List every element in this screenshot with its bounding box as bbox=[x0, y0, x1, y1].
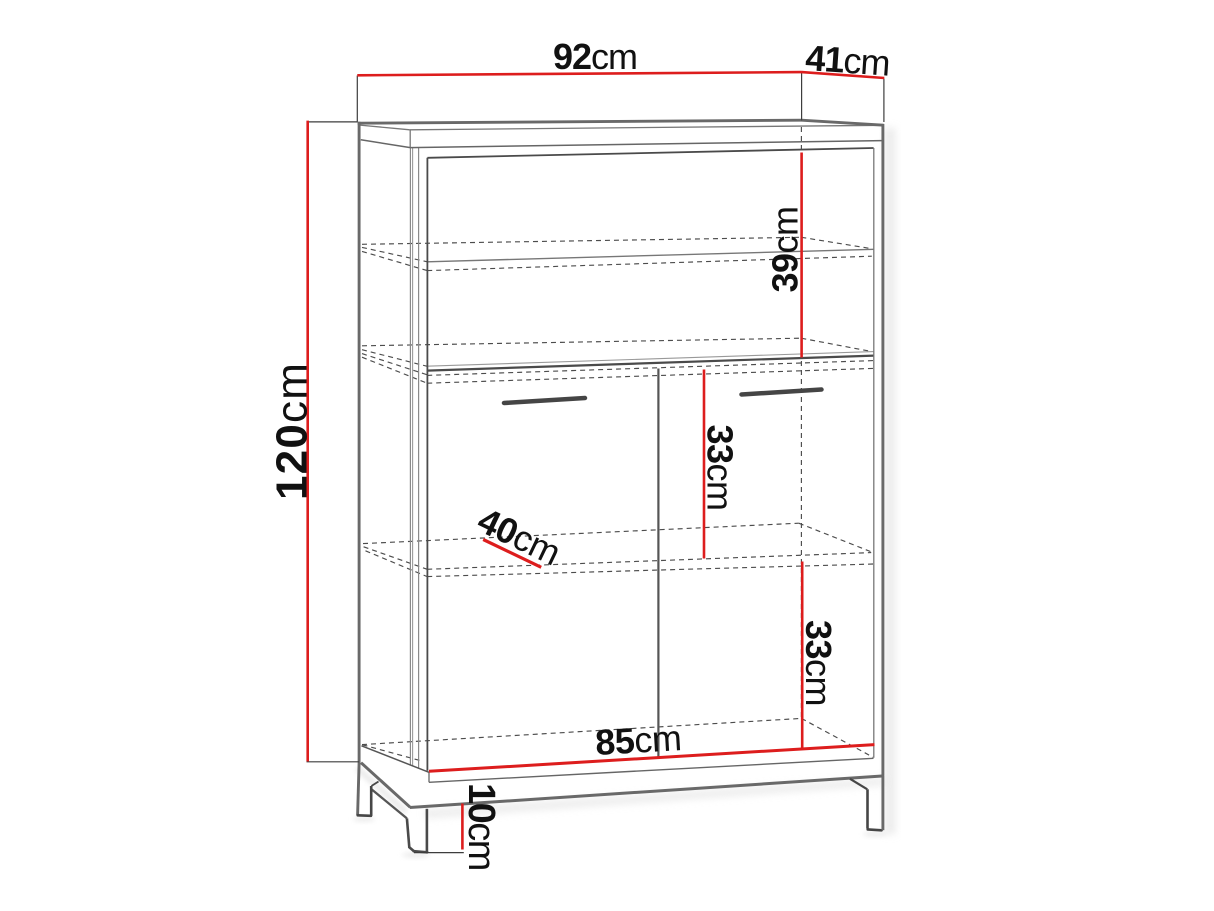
svg-text:40cm: 40cm bbox=[472, 499, 567, 573]
svg-text:41cm: 41cm bbox=[804, 37, 891, 84]
svg-text:10cm: 10cm bbox=[460, 783, 502, 870]
svg-text:33cm: 33cm bbox=[700, 425, 741, 511]
svg-text:85cm: 85cm bbox=[594, 717, 682, 763]
svg-text:120cm: 120cm bbox=[268, 362, 317, 500]
svg-text:33cm: 33cm bbox=[798, 620, 839, 706]
svg-text:39cm: 39cm bbox=[765, 206, 806, 292]
svg-text:92cm: 92cm bbox=[553, 36, 637, 77]
